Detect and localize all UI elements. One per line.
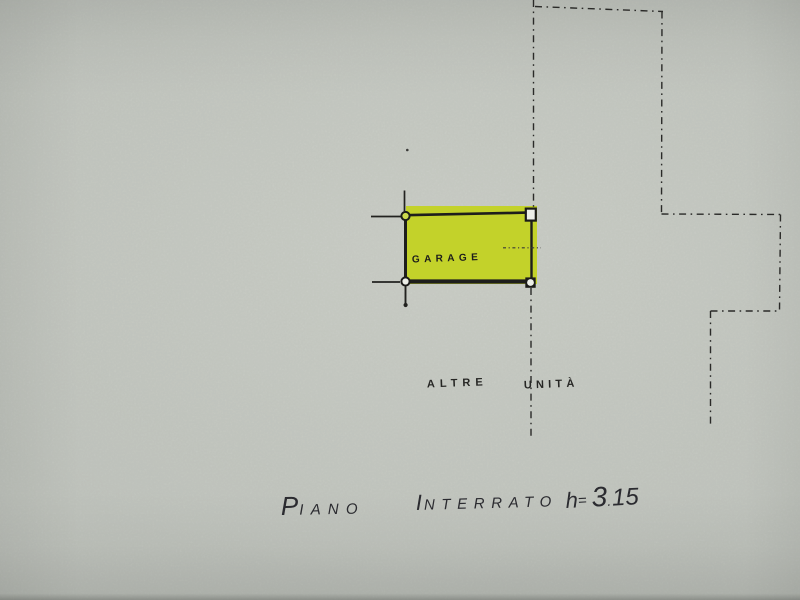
svg-text:ALTRE: ALTRE	[427, 376, 488, 390]
svg-text:UNITÀ: UNITÀ	[524, 377, 579, 392]
